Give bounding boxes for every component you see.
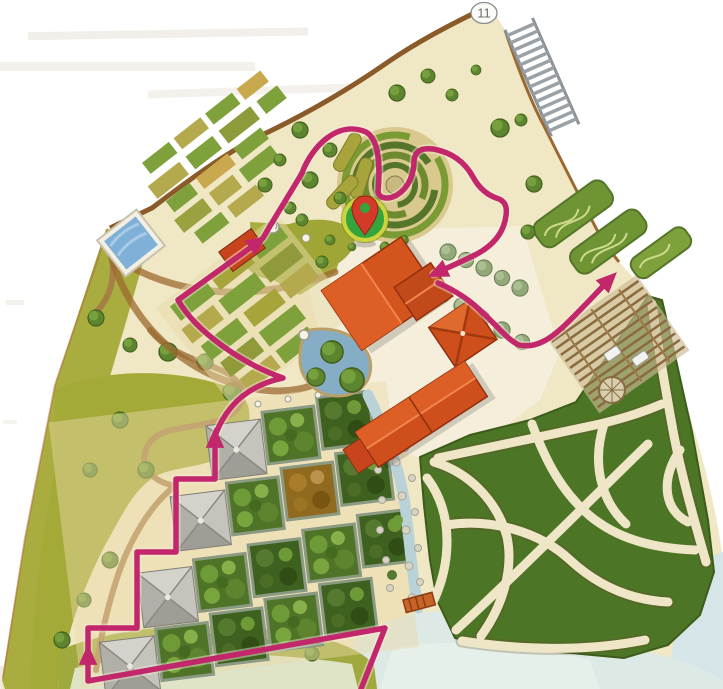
map-canvas: 11 bbox=[0, 0, 723, 689]
rotunda bbox=[599, 377, 625, 403]
garden-plot bbox=[248, 539, 306, 597]
greenhouse-pyramid bbox=[138, 567, 198, 627]
badge-label: 11 bbox=[477, 6, 491, 21]
garden-plot bbox=[262, 406, 320, 464]
garden-plot bbox=[226, 477, 284, 535]
garden-plot bbox=[193, 553, 251, 611]
stop-badge: 11 bbox=[471, 3, 497, 24]
garden-plot bbox=[281, 462, 339, 520]
garden-plot bbox=[303, 524, 361, 582]
map-illustration: 11 bbox=[0, 0, 723, 689]
